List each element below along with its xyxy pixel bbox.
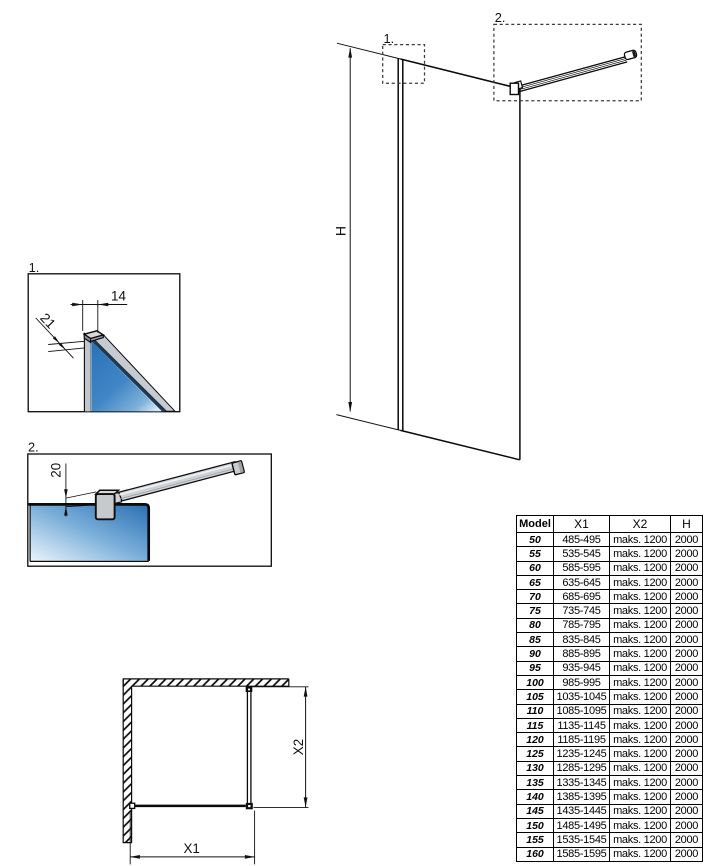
svg-text:20: 20: [49, 463, 64, 478]
svg-text:1.: 1.: [384, 31, 395, 46]
svg-text:21: 21: [37, 310, 58, 331]
svg-text:1.: 1.: [29, 260, 40, 275]
svg-text:X2: X2: [291, 739, 306, 755]
svg-text:H: H: [333, 226, 349, 236]
svg-text:X1: X1: [184, 841, 200, 856]
svg-text:14: 14: [111, 289, 126, 304]
svg-text:2.: 2.: [495, 10, 506, 25]
svg-text:2.: 2.: [28, 440, 39, 455]
